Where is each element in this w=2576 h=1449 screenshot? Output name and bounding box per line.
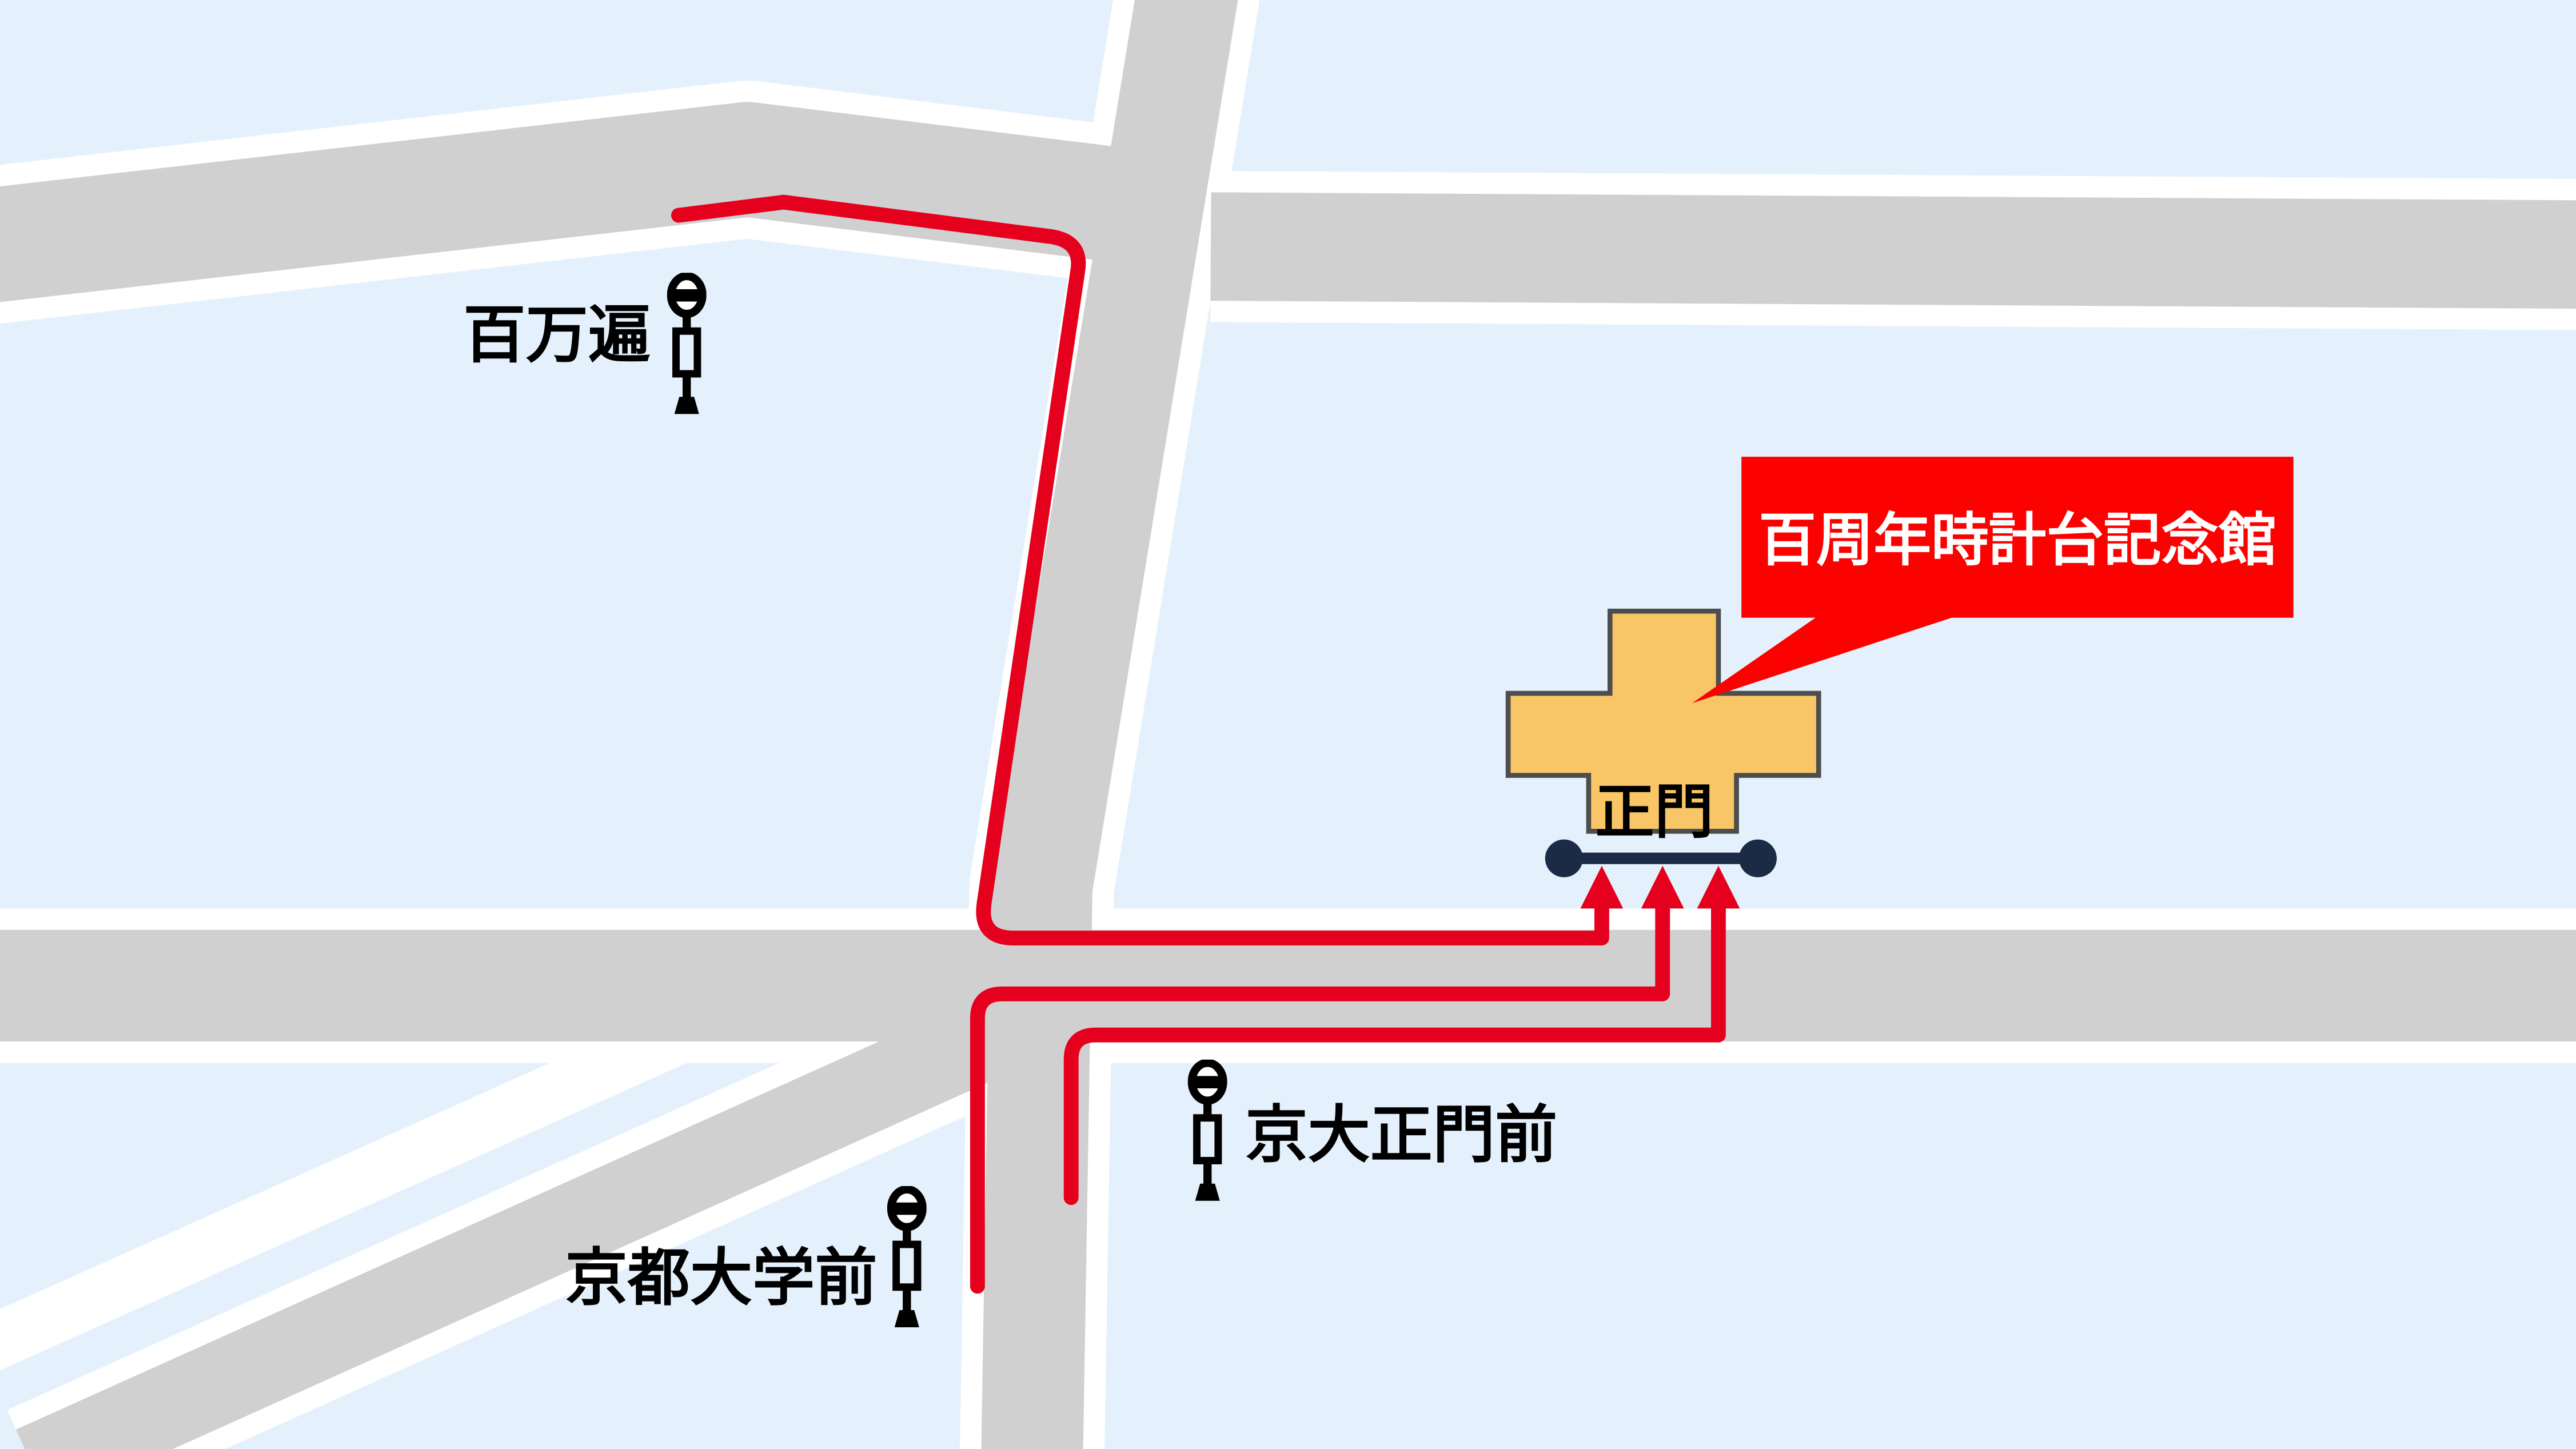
map-stage: 正門 百周年時計台記念館 百万遍 京大正門前 京都大学前 [0,0,2576,1449]
bus-stop-label: 百万遍 [463,300,651,370]
road-northeast [1211,246,2576,254]
gate-end-dot-left [1545,840,1583,877]
gate-label: 正門 [1595,779,1713,845]
bus-stop-label: 京都大学前 [565,1243,878,1313]
road-northwest [0,159,1150,250]
gate-end-dot-right [1739,840,1777,877]
bus-stop-label: 京大正門前 [1245,1100,1557,1170]
callout-label: 百周年時計台記念館 [1758,509,2276,573]
campus-access-map: 正門 百周年時計台記念館 百万遍 京大正門前 京都大学前 [0,0,2576,1449]
